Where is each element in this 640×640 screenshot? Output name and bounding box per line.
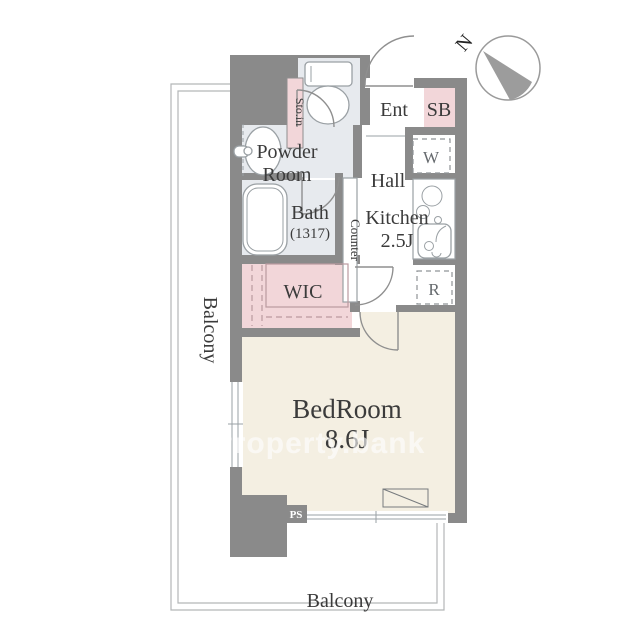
floor-plan-svg: N Ent SB Sto.in Powder Room Hall W Kitch…	[0, 0, 640, 640]
washer-space-label: W	[423, 148, 440, 167]
shoe-box-label: SB	[427, 99, 451, 121]
hall-label: Hall	[371, 170, 406, 192]
kitchen-label: Kitchen	[365, 207, 428, 229]
balcony-left-label: Balcony	[199, 297, 221, 364]
bedroom-label: BedRoom	[292, 394, 402, 424]
wic-door	[355, 267, 393, 305]
watermark-text: Property.bank	[213, 427, 426, 460]
balcony-bottom-label: Balcony	[307, 590, 374, 612]
counter-label: Counter	[348, 219, 363, 262]
kitchen-size-label: 2.5J	[381, 230, 414, 252]
refrigerator-space-label: R	[428, 280, 440, 299]
kitchen-sink-icon	[418, 224, 451, 258]
powder-room-label-line1: Powder	[256, 141, 317, 163]
balcony-sliding-window	[305, 511, 448, 523]
floor-plan: N Ent SB Sto.in Powder Room Hall W Kitch…	[0, 0, 640, 640]
bath-size-label: (1317)	[290, 226, 330, 242]
storage-label: Sto.in	[293, 98, 307, 126]
compass-north-label: N	[451, 31, 477, 56]
bath-label: Bath	[291, 202, 329, 224]
powder-room-label-line2: Room	[263, 164, 312, 186]
entrance-label: Ent	[380, 99, 408, 121]
pipe-space-label: PS	[290, 509, 303, 521]
wic-label: WIC	[284, 281, 323, 303]
bathtub-icon	[243, 184, 287, 255]
